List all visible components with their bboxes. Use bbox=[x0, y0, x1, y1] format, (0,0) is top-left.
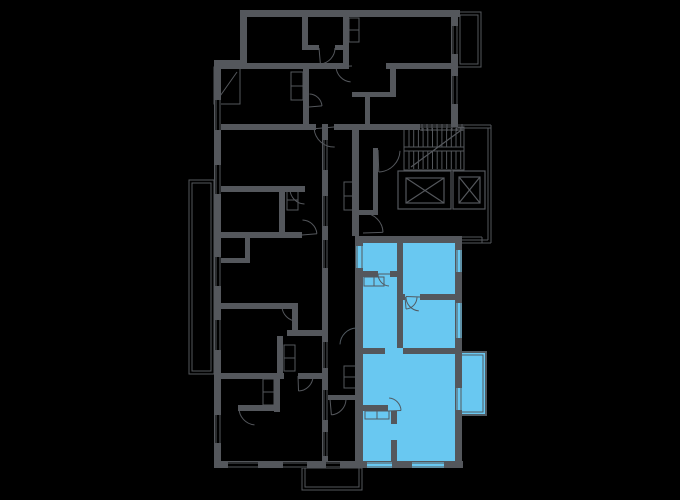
elevator-1-shaft-icon bbox=[398, 171, 451, 209]
elevator-2-shaft-icon bbox=[453, 171, 485, 209]
floor-plan-canvas bbox=[0, 0, 680, 500]
balcony-bottom bbox=[302, 468, 362, 490]
balcony-top-right bbox=[457, 12, 481, 67]
highlighted-apartment[interactable] bbox=[340, 236, 486, 468]
balcony-left bbox=[189, 180, 214, 374]
staircase bbox=[404, 124, 464, 170]
floor-plan-viewer bbox=[0, 0, 680, 500]
